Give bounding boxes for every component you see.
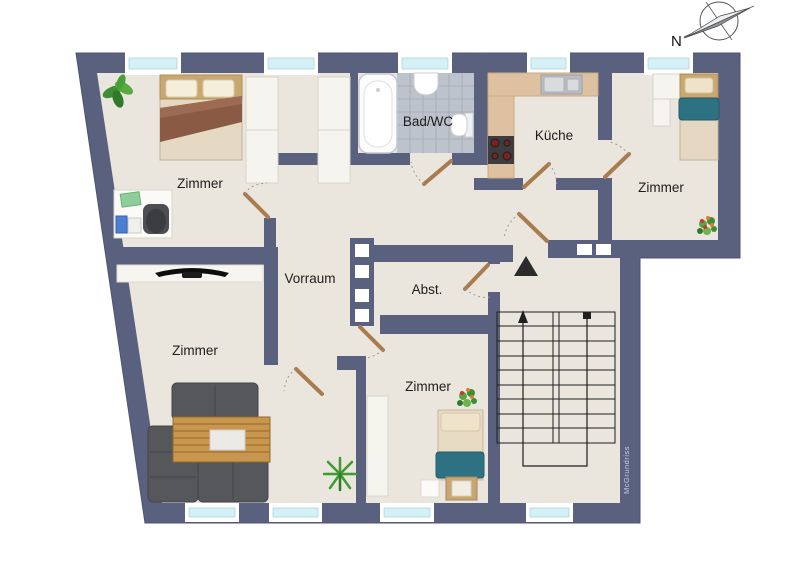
room-label-zimmer-s: Zimmer <box>405 379 451 394</box>
window-icon <box>125 52 181 75</box>
floorplan-canvas: Zimmer Bad/WC Küche Zimmer Vorraum Abst.… <box>0 0 800 565</box>
window-icon <box>269 503 322 522</box>
toilet <box>451 113 473 137</box>
coffee-table <box>173 417 270 462</box>
room-label-abstellraum: Abst. <box>412 282 443 297</box>
window-icon <box>380 503 434 522</box>
room-label-zimmer-nw: Zimmer <box>177 176 223 191</box>
window-icon <box>527 52 570 75</box>
chimney-shaft <box>350 238 374 326</box>
window-icon <box>644 52 693 75</box>
double-bed <box>160 75 242 160</box>
single-bed <box>679 74 719 160</box>
window-icon <box>185 503 239 522</box>
wardrobe <box>367 396 388 496</box>
compass-north-label: N <box>671 33 682 50</box>
floor-plan: Zimmer Bad/WC Küche Zimmer Vorraum Abst.… <box>0 0 800 565</box>
room-label-vorraum: Vorraum <box>284 271 335 286</box>
room-label-bad-wc: Bad/WC <box>403 114 454 129</box>
watermark-text: McGrundriss <box>622 446 631 494</box>
stove <box>488 136 514 164</box>
room-label-kueche: Küche <box>535 128 573 143</box>
washbasin <box>414 73 438 95</box>
window-icon <box>526 503 573 522</box>
compass-icon <box>684 2 754 40</box>
window-icon <box>264 52 318 75</box>
kitchen-sink <box>541 75 582 94</box>
window-icon <box>398 52 452 75</box>
bathtub <box>359 74 397 153</box>
nightstand <box>421 480 439 497</box>
room-label-zimmer-sw: Zimmer <box>172 343 218 358</box>
office-chair <box>143 204 169 234</box>
room-label-zimmer-ne: Zimmer <box>638 180 684 195</box>
